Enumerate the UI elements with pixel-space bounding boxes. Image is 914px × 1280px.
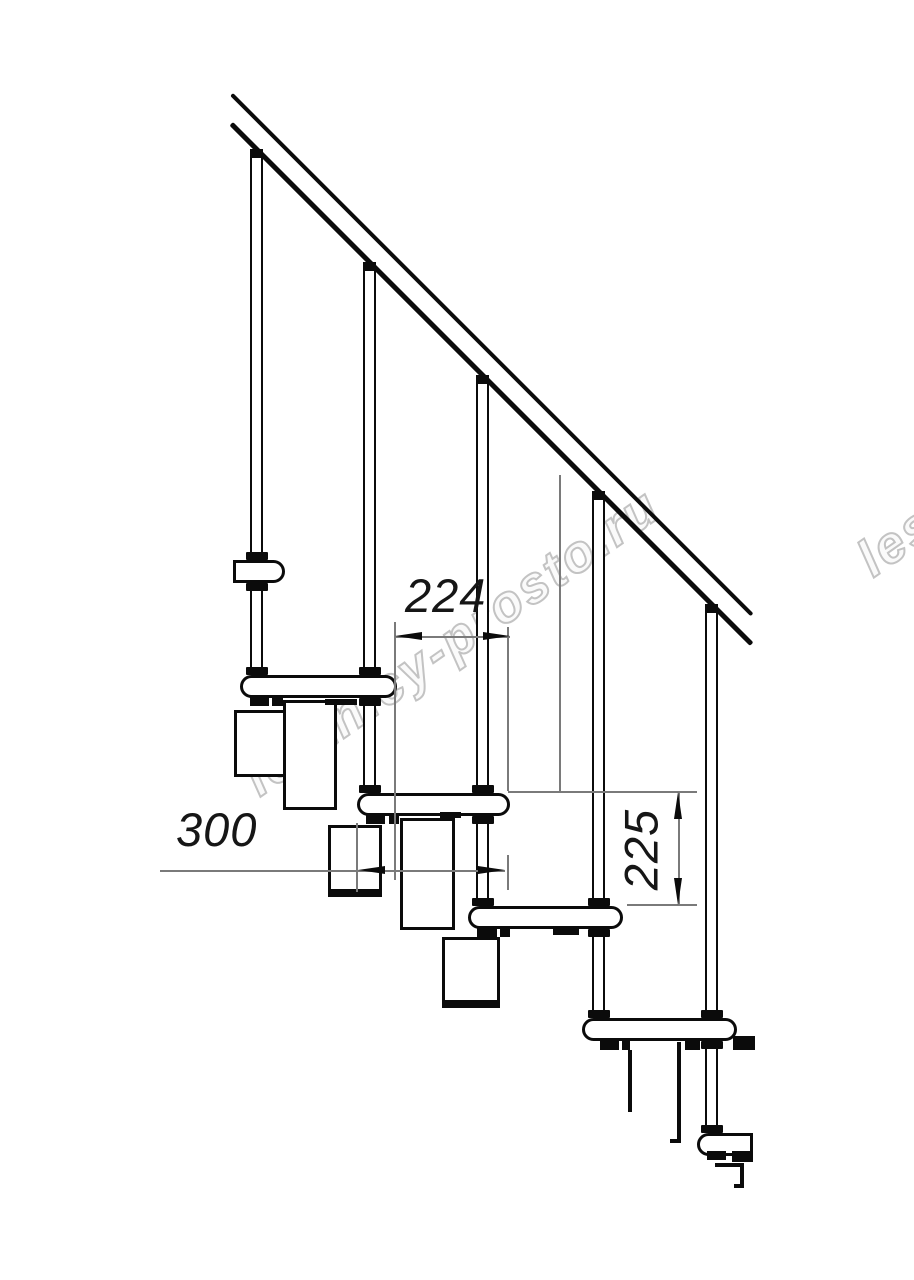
baluster-collar — [359, 785, 381, 793]
dimension-300-label: 300 — [176, 806, 257, 853]
handrail-bottom-line — [229, 122, 753, 646]
extension-line — [508, 791, 697, 793]
baluster-post — [363, 262, 376, 793]
baluster-collar — [701, 1010, 723, 1018]
baluster-collar — [588, 1010, 610, 1018]
baluster-collar — [588, 929, 610, 937]
tread-connector — [366, 815, 385, 824]
tread-connector — [732, 1151, 753, 1162]
extension-line — [394, 622, 396, 880]
dimension-224-arrow-left — [395, 632, 422, 640]
module-cut-foot — [670, 1139, 679, 1143]
tread-connector — [707, 1151, 726, 1160]
dimension-224-arrow-right — [483, 632, 510, 640]
handrail-top-line — [230, 93, 753, 616]
module-cut-line — [628, 1050, 632, 1112]
dimension-300-line — [160, 870, 505, 872]
tread-connector — [553, 929, 579, 935]
baluster-post — [592, 491, 605, 1018]
tread-connector — [622, 1041, 630, 1050]
dimension-225-arrow-up — [674, 792, 682, 819]
tread — [468, 906, 623, 929]
tread-connector — [733, 1036, 755, 1050]
tread — [240, 675, 397, 698]
baluster-collar — [701, 1041, 723, 1049]
baluster-rail-cap — [592, 491, 605, 500]
extension-line — [356, 823, 358, 892]
extension-line — [507, 855, 509, 890]
module-block — [234, 710, 288, 777]
tread — [582, 1018, 737, 1041]
baluster-collar — [359, 667, 381, 675]
tread-connector — [600, 1041, 619, 1050]
baluster-post — [705, 604, 718, 1133]
tread-connector — [250, 697, 269, 706]
baluster-collar — [359, 698, 381, 706]
cut-hook-horizontal — [715, 1163, 743, 1167]
baluster-collar — [472, 785, 494, 793]
dimension-224-label: 224 — [405, 572, 486, 619]
baluster-collar — [472, 898, 494, 906]
watermark-fragment: lest — [846, 481, 914, 588]
staircase-technical-drawing: lestnicy-prosto.ru lest — [0, 0, 914, 1280]
tread-connector — [500, 928, 510, 937]
baluster-post — [476, 375, 489, 906]
baluster-collar — [246, 583, 268, 591]
baluster-rail-cap — [705, 604, 718, 613]
baluster-post — [250, 149, 263, 675]
baluster-rail-cap — [476, 375, 489, 384]
dimension-300-arrow-right — [478, 866, 505, 874]
tread-connector — [685, 1039, 700, 1050]
extension-line — [559, 475, 561, 791]
extension-line — [507, 627, 509, 791]
baluster-collar — [472, 816, 494, 824]
tread-connector — [477, 928, 497, 937]
module-strut — [283, 700, 337, 810]
module-block — [328, 825, 382, 897]
module-block-base — [442, 1000, 500, 1008]
baluster-collar — [701, 1125, 723, 1133]
module-block — [442, 937, 500, 1008]
baluster-rail-cap — [250, 149, 263, 158]
cut-hook-foot — [734, 1184, 743, 1188]
tread-connector — [272, 697, 283, 706]
dimension-300-arrow-left — [358, 866, 385, 874]
baluster-collar — [588, 898, 610, 906]
module-block-base — [328, 889, 382, 897]
baluster-collar — [246, 552, 268, 560]
module-cut-line — [677, 1042, 681, 1143]
baluster-rail-cap — [363, 262, 376, 271]
tread — [357, 793, 510, 816]
tread-top-partial — [233, 560, 285, 583]
module-strut — [400, 818, 455, 930]
dimension-225-label: 225 — [618, 795, 665, 905]
baluster-collar — [246, 667, 268, 675]
dimension-225-arrow-down — [674, 878, 682, 905]
tread-connector — [325, 699, 357, 705]
tread-connector — [440, 812, 461, 818]
